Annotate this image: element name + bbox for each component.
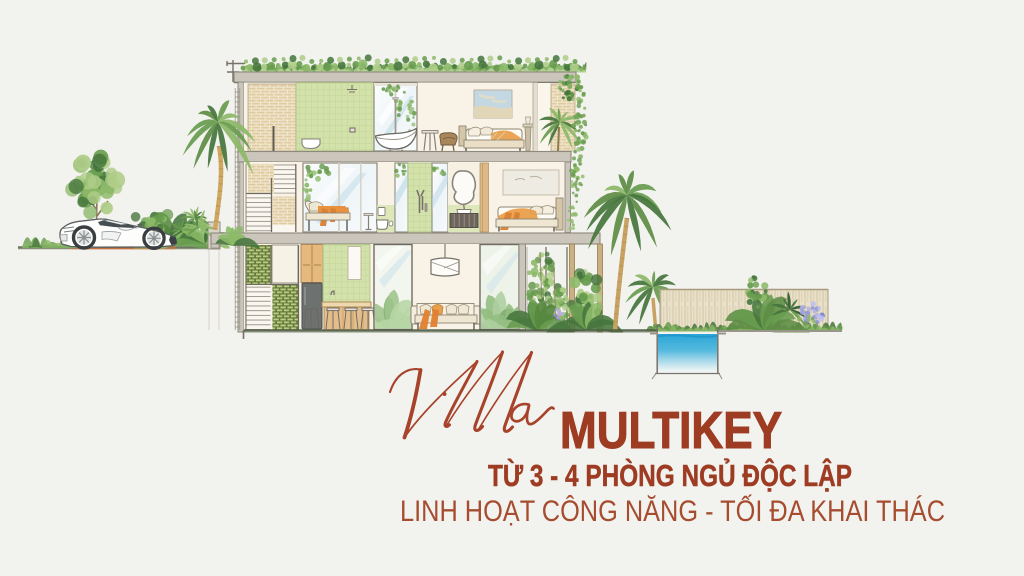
svg-text:LINH HOẠT CÔNG NĂNG - TỐI ĐA K: LINH HOẠT CÔNG NĂNG - TỐI ĐA KHAI THÁC (400, 494, 945, 528)
svg-text:MULTIKEY: MULTIKEY (560, 402, 782, 460)
svg-text:TỪ 3 - 4 PHÒNG NGỦ ĐỘC LẬP: TỪ 3 - 4 PHÒNG NGỦ ĐỘC LẬP (488, 457, 852, 493)
